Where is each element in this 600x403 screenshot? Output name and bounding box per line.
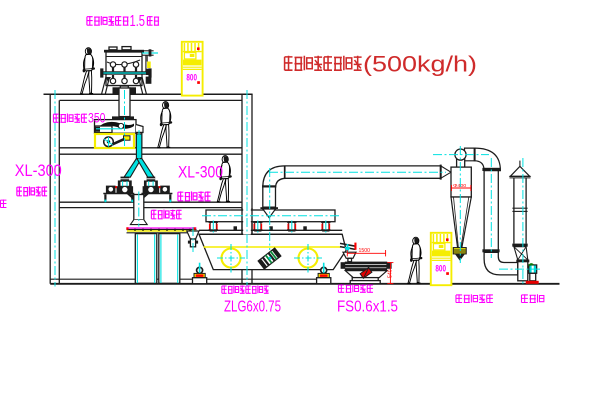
svg-text:XL-300: XL-300: [178, 163, 223, 182]
svg-text:XL-300: XL-300: [15, 161, 62, 180]
svg-text:ZLG6x0.75: ZLG6x0.75: [224, 299, 281, 316]
svg-text:540: 540: [388, 269, 394, 278]
svg-text:800: 800: [435, 263, 446, 273]
svg-text:800: 800: [186, 72, 197, 82]
svg-text:1500: 1500: [359, 248, 371, 254]
svg-text:(500kg/h): (500kg/h): [363, 51, 477, 76]
svg-text:350: 350: [88, 110, 106, 126]
svg-text:FS0.6x1.5: FS0.6x1.5: [337, 299, 398, 316]
svg-text:1.5: 1.5: [130, 13, 146, 30]
